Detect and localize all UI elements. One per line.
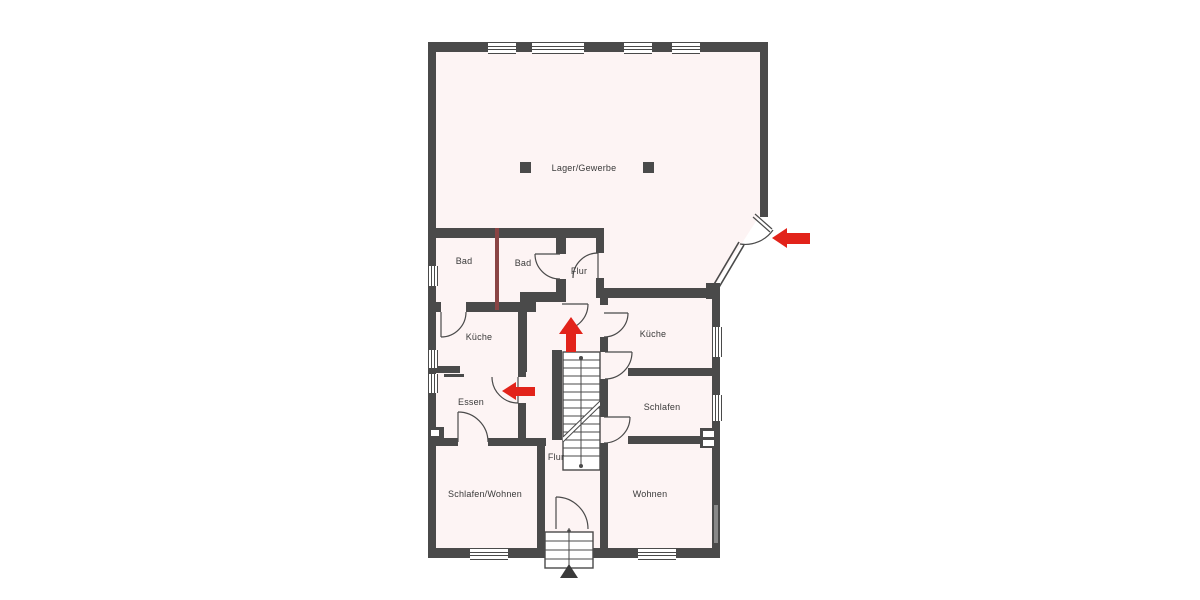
pillar-right: [643, 162, 654, 173]
room-label-schlafen: Schlafen: [644, 402, 681, 412]
room-label-bad-left: Bad: [456, 256, 473, 266]
entrance-arrow-essen: [502, 382, 535, 401]
wall-kueche-essen-stub1: [436, 366, 460, 373]
wall-outer-left: [428, 42, 436, 558]
stair-direction-triangle: [560, 564, 578, 578]
wall-outer-top: [428, 42, 768, 52]
window-top-2: [532, 42, 584, 54]
room-label-schlafen-wohnen: Schlafen/Wohnen: [448, 489, 522, 499]
window-left-2: [428, 350, 438, 368]
floorplan-canvas: Lager/Gewerbe Bad Bad Flur Küche Küche E…: [0, 0, 1200, 600]
wall-bads-bottom-right: [520, 292, 564, 302]
window-right-2: [712, 395, 722, 421]
window-bottom-2: [638, 548, 676, 560]
wall-lager-bottom-right: [596, 288, 720, 298]
window-top-4: [672, 42, 700, 54]
floor-lager: [436, 52, 760, 215]
window-right-1: [712, 327, 722, 357]
wall-hall-right-c: [600, 379, 608, 417]
window-top-3: [624, 42, 652, 54]
room-label-flur-upper: Flur: [571, 266, 587, 276]
room-label-kueche-left: Küche: [466, 332, 493, 342]
wall-hall-right-b: [600, 337, 608, 352]
window-bottom-1: [470, 548, 508, 560]
wall-kueche-essen-stub2: [444, 374, 464, 377]
wall-stair-left-stub: [552, 350, 562, 440]
wall-watermark: [714, 505, 718, 543]
entrance-arrow-up: [559, 317, 583, 357]
room-label-wohnen: Wohnen: [633, 489, 668, 499]
window-left-3: [428, 374, 438, 393]
room-label-essen: Essen: [458, 397, 484, 407]
partition-marking: [495, 228, 499, 310]
room-label-bad-right: Bad: [515, 258, 532, 268]
wall-kueche-hall: [518, 302, 527, 372]
wall-central-upper: [596, 228, 604, 253]
wall-lager-bottom-left: [428, 228, 596, 238]
wall-hall-right-d: [600, 443, 608, 548]
wall-essen-sw-a: [428, 438, 458, 446]
pillar-left: [520, 162, 531, 173]
floor-chamfer: [712, 215, 760, 290]
entrance-arrow-lager: [772, 228, 810, 249]
wall-hall-right-a: [600, 298, 608, 305]
wall-essen-hall-top: [518, 372, 526, 377]
window-left-1: [428, 266, 438, 286]
room-label-lager: Lager/Gewerbe: [552, 163, 617, 173]
wall-kueche-schlafen-divider: [628, 368, 712, 376]
room-label-kueche-right: Küche: [640, 329, 667, 339]
wall-fixture-right: [700, 428, 720, 448]
wall-sw-hall: [537, 438, 545, 548]
wall-outer-right-upper: [760, 42, 768, 217]
wall-central-lower: [596, 278, 604, 288]
wall-bad-flur-upper: [556, 232, 566, 254]
wall-bads-bottom-left-a: [428, 302, 441, 312]
wall-fixture-left: [428, 427, 444, 439]
room-label-flur-lower: Flur: [548, 452, 564, 462]
window-top-1: [488, 42, 516, 54]
